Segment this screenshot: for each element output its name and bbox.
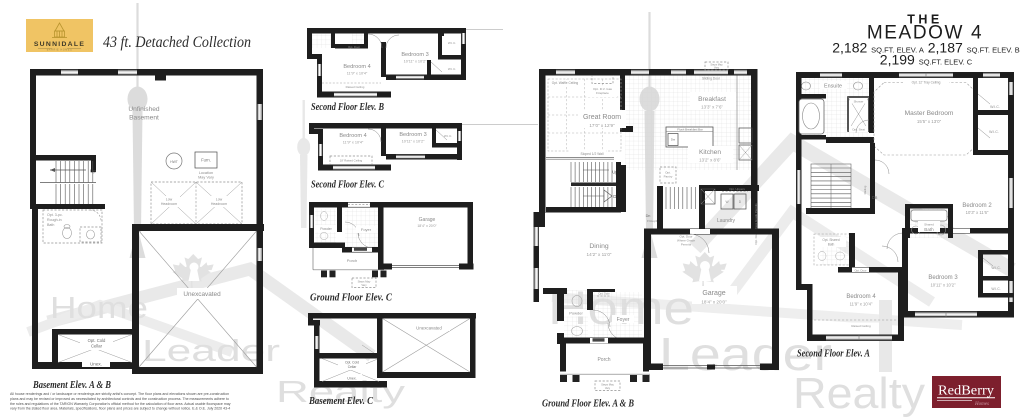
svg-text:18' Raised Ceiling: 18' Raised Ceiling (340, 159, 363, 163)
svg-text:Breakfast: Breakfast (698, 96, 726, 103)
svg-text:SUNNIDALE: SUNNIDALE (34, 41, 85, 48)
svg-text:Opt. Door Where Grade Permits: Opt. Door Where Grade Permits (754, 203, 758, 245)
svg-text:Opt. Shared: Opt. Shared (822, 238, 839, 242)
svg-text:Great Room: Great Room (583, 114, 621, 121)
svg-text:Rough-in: Rough-in (47, 218, 62, 222)
svg-text:HWT: HWT (170, 160, 178, 164)
svg-text:vary from the stated floor are: vary from the stated floor area. Materia… (10, 407, 230, 411)
svg-text:Cellar: Cellar (91, 344, 103, 349)
svg-text:W.I.C.: W.I.C. (989, 130, 999, 134)
svg-text:Headroom: Headroom (211, 202, 227, 206)
svg-text:Vary: Vary (605, 386, 611, 390)
svg-text:Powder: Powder (320, 227, 332, 231)
svg-text:Opt. Uppers: Opt. Uppers (729, 187, 745, 191)
svg-text:Permits: Permits (681, 243, 692, 247)
svg-text:Dn: Dn (872, 195, 878, 200)
svg-text:Foyer: Foyer (361, 227, 372, 232)
svg-text:W.I.C.: W.I.C. (990, 105, 1000, 109)
svg-text:Opt. Door: Opt. Door (348, 45, 360, 49)
svg-text:plans and may be revised or im: plans and may be revised or improved as … (10, 397, 229, 401)
svg-text:Unex.: Unex. (90, 362, 102, 367)
svg-text:Basement: Basement (129, 115, 159, 122)
svg-text:Shared: Shared (924, 223, 934, 227)
svg-text:Realty: Realty (793, 369, 925, 418)
svg-text:Bedroom 3: Bedroom 3 (401, 52, 428, 58)
svg-text:W.I.C.: W.I.C. (448, 67, 456, 71)
svg-text:Dining: Dining (589, 243, 608, 250)
svg-text:All house renderings and / or: All house renderings and / or landscape … (10, 392, 229, 396)
svg-text:Bath: Bath (828, 243, 835, 247)
svg-text:Fireplace: Fireplace (596, 91, 609, 95)
svg-text:Garage: Garage (419, 217, 436, 223)
svg-text:Opt. Cold: Opt. Cold (88, 338, 106, 343)
svg-text:Opt. Door: Opt. Door (854, 268, 866, 272)
svg-text:Basement Elev. C: Basement Elev. C (308, 396, 374, 407)
svg-text:15’5” x 13’0”: 15’5” x 13’0” (917, 119, 942, 124)
svg-text:Laundry: Laundry (717, 218, 736, 224)
svg-text:2,182 SQ.FT. ELEV. A 2,187 SQ: 2,182 SQ.FT. ELEV. A 2,187 SQ.FT. ELEV. … (832, 40, 1020, 56)
svg-text:Second Floor Elev. A: Second Floor Elev. A (797, 349, 870, 360)
svg-text:10’11” x 10’2”: 10’11” x 10’2” (402, 140, 425, 144)
svg-text:Homes: Homes (974, 402, 989, 407)
svg-text:18’4” x 20’0”: 18’4” x 20’0” (417, 224, 437, 228)
svg-text:Opt. Waffle Ceiling: Opt. Waffle Ceiling (552, 81, 579, 85)
svg-text:11’9” x 10’4”: 11’9” x 10’4” (850, 302, 873, 307)
svg-text:Bath: Bath (924, 227, 934, 232)
svg-text:Unfinished: Unfinished (128, 106, 159, 113)
svg-text:Steps May: Steps May (358, 280, 371, 284)
svg-text:Second Floor Elev. C: Second Floor Elev. C (311, 180, 385, 191)
svg-text:10’11” x 10’2”: 10’11” x 10’2” (404, 60, 427, 64)
svg-text:14’2” x 11’0”: 14’2” x 11’0” (587, 252, 612, 257)
svg-text:Headroom: Headroom (161, 202, 177, 206)
svg-text:If Req’d: If Req’d (647, 219, 658, 223)
svg-text:Bedroom 2: Bedroom 2 (962, 203, 992, 209)
svg-text:Opt. 12' Tray Ceiling: Opt. 12' Tray Ceiling (912, 81, 941, 85)
svg-text:43 ft. Detached Collection: 43 ft. Detached Collection (103, 34, 251, 51)
svg-text:Raised Ceiling: Raised Ceiling (346, 85, 365, 89)
svg-text:Sloped 1/2 Wall: Sloped 1/2 Wall (581, 152, 604, 156)
svg-text:Vary: Vary (714, 66, 720, 70)
svg-text:13’3” x 7’6”: 13’3” x 7’6” (701, 105, 723, 110)
svg-text:11’9” x 10’4”: 11’9” x 10’4” (343, 141, 364, 145)
svg-text:Up: Up (90, 169, 96, 174)
svg-text:17’0” x 12’9”: 17’0” x 12’9” (589, 123, 615, 128)
svg-text:Basement Elev. A & B: Basement Elev. A & B (32, 380, 111, 391)
svg-text:Opt. 3-pc.: Opt. 3-pc. (47, 213, 63, 217)
svg-text:Steps May: Steps May (601, 383, 614, 387)
svg-text:Sliding Door: Sliding Door (702, 77, 721, 81)
svg-text:Opt. Seat: Opt. Seat (852, 128, 865, 132)
svg-text:10’3” x 11’6”: 10’3” x 11’6” (966, 210, 989, 215)
svg-text:10’11” x 10’2”: 10’11” x 10’2” (930, 283, 956, 288)
svg-text:Location: Location (199, 171, 213, 175)
svg-text:Bedroom 4: Bedroom 4 (846, 294, 876, 300)
svg-text:Raised Ceiling: Raised Ceiling (851, 324, 871, 328)
svg-text:Low: Low (166, 198, 173, 202)
svg-text:Opt. Cold: Opt. Cold (345, 361, 359, 365)
svg-text:RedBerry: RedBerry (938, 383, 994, 398)
svg-text:Unexcavated: Unexcavated (183, 291, 221, 298)
svg-text:Low: Low (216, 198, 223, 202)
svg-text:Master Bedroom: Master Bedroom (905, 110, 954, 117)
svg-text:Unexcavated: Unexcavated (416, 326, 442, 331)
svg-text:18’4” x 20’0”: 18’4” x 20’0” (701, 300, 727, 305)
svg-text:Shower: Shower (854, 100, 864, 104)
svg-text:Kitchen: Kitchen (699, 149, 721, 156)
svg-text:Second Floor Elev. B: Second Floor Elev. B (311, 102, 384, 113)
svg-text:Bath: Bath (47, 223, 54, 227)
svg-text:Ensuite: Ensuite (824, 84, 842, 90)
svg-text:W.I.C.: W.I.C. (991, 266, 1000, 270)
svg-text:W.I.C.: W.I.C. (444, 134, 452, 138)
svg-text:Garage: Garage (702, 290, 725, 297)
svg-text:the rules and regulations of t: the rules and regulations of the TARION … (10, 402, 231, 406)
svg-text:Powder: Powder (569, 311, 583, 316)
svg-text:Porch: Porch (597, 357, 610, 363)
svg-text:Ground Floor Elev. C: Ground Floor Elev. C (310, 293, 393, 304)
svg-text:May Vary: May Vary (198, 176, 214, 180)
svg-text:13’2” x 8’6”: 13’2” x 8’6” (699, 158, 721, 163)
svg-text:Cellar: Cellar (348, 365, 358, 369)
svg-text:BARRIE HOMES: BARRIE HOMES (47, 48, 73, 51)
svg-text:Furn.: Furn. (201, 158, 211, 163)
svg-text:Dn: Dn (646, 214, 651, 218)
svg-text:Foyer: Foyer (617, 317, 630, 323)
svg-text:Unex.: Unex. (347, 377, 356, 381)
svg-text:Bedroom 3: Bedroom 3 (928, 275, 958, 281)
svg-text:Bedroom 4: Bedroom 4 (343, 64, 370, 70)
svg-text:Porch: Porch (347, 258, 357, 263)
svg-text:Ground Floor Elev. A & B: Ground Floor Elev. A & B (542, 399, 634, 410)
svg-text:Bedroom 3: Bedroom 3 (399, 132, 426, 138)
svg-text:Flush Breakfast Bar: Flush Breakfast Bar (677, 128, 702, 132)
svg-text:11’9” x 10’4”: 11’9” x 10’4” (347, 72, 368, 76)
svg-text:W.I.C.: W.I.C. (991, 287, 1000, 291)
svg-text:W.I.C.: W.I.C. (448, 41, 456, 45)
svg-text:Railing: Railing (863, 185, 867, 194)
svg-text:Vary: Vary (361, 283, 367, 287)
svg-text:Pantry: Pantry (664, 175, 673, 179)
svg-text:Opt. Door: Opt. Door (598, 292, 609, 296)
svg-text:Bedroom 4: Bedroom 4 (339, 133, 366, 139)
